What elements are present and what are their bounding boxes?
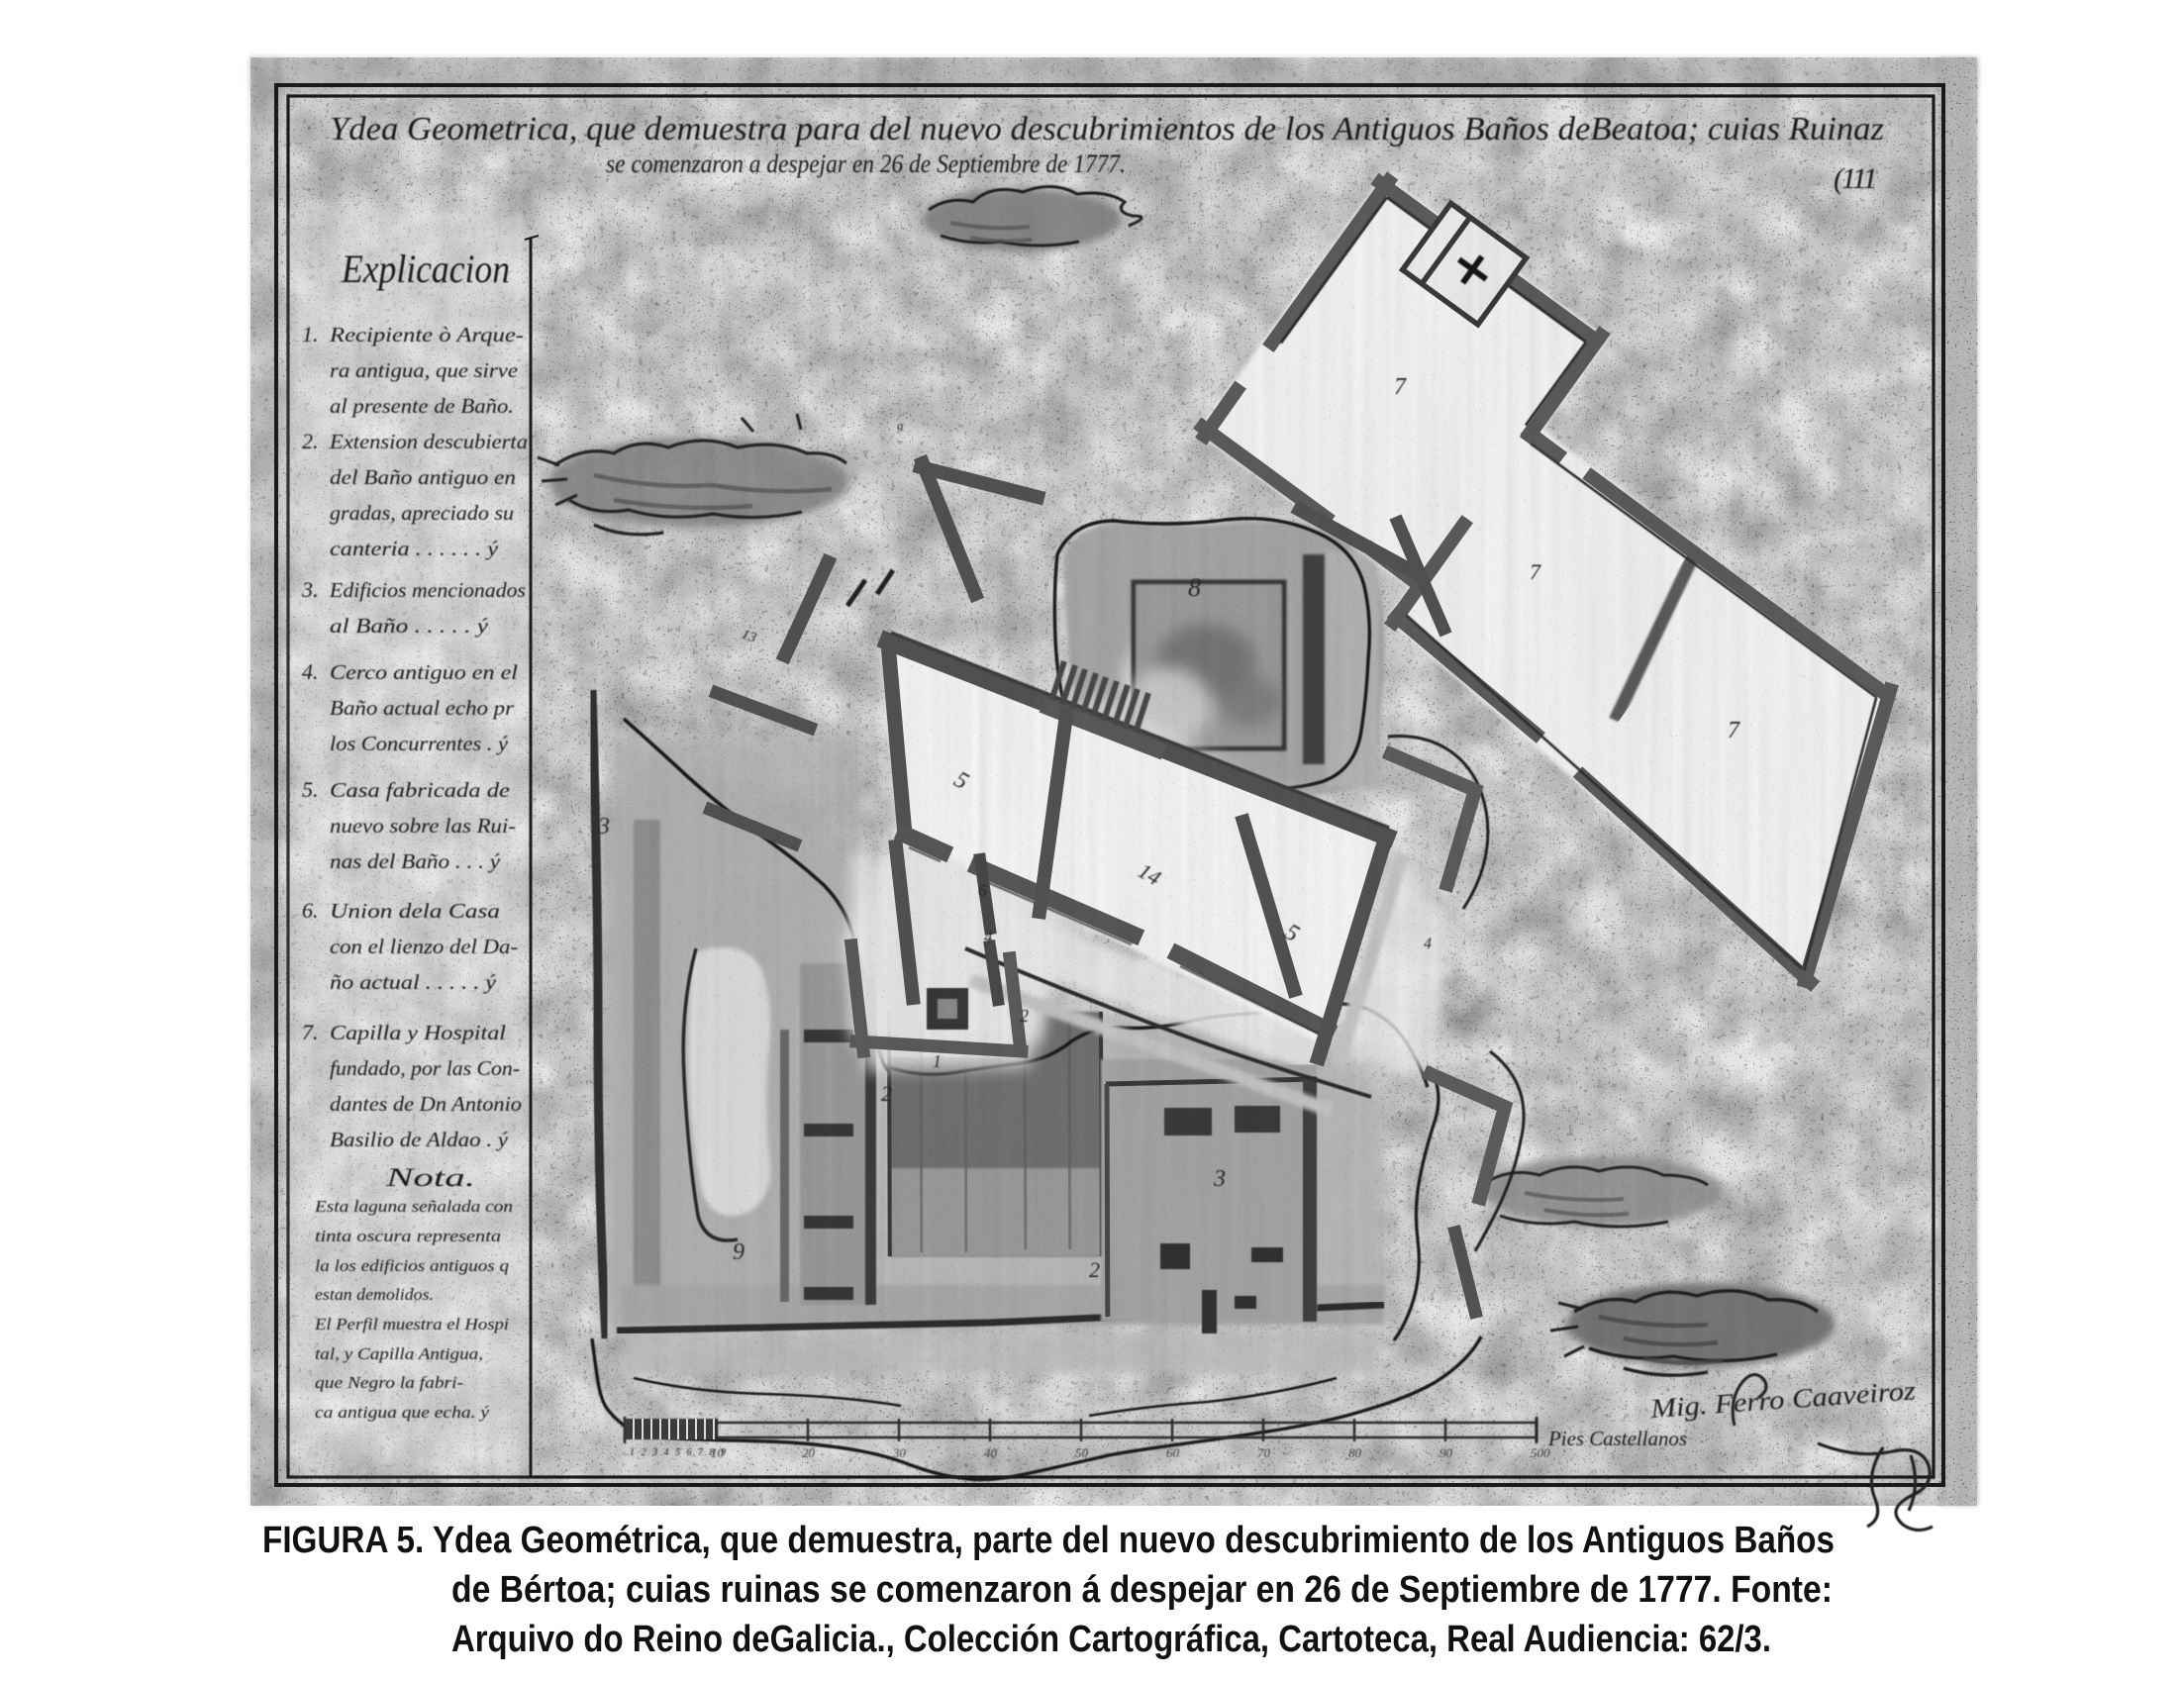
svg-text:80: 80 bbox=[1348, 1445, 1362, 1460]
svg-text:500: 500 bbox=[1531, 1445, 1550, 1460]
svg-text:1 2 3 4 5 6 7 8 9: 1 2 3 4 5 6 7 8 9 bbox=[630, 1447, 728, 1458]
svg-text:50: 50 bbox=[1075, 1445, 1089, 1460]
svg-text:90: 90 bbox=[1439, 1445, 1453, 1460]
svg-text:Arquivo do Reino deGalicia., C: Arquivo do Reino deGalicia., Colección C… bbox=[451, 1619, 1771, 1660]
svg-text:60: 60 bbox=[1166, 1445, 1180, 1460]
svg-text:de Bértoa; cuias ruinas se com: de Bértoa; cuias ruinas se comenzaron á … bbox=[451, 1569, 1833, 1611]
svg-text:70: 70 bbox=[1257, 1445, 1271, 1460]
svg-text:FIGURA 5. Ydea Geométrica, que: FIGURA 5. Ydea Geométrica, que demuestra… bbox=[262, 1520, 1835, 1561]
svg-text:40: 40 bbox=[984, 1445, 998, 1460]
svg-text:20: 20 bbox=[802, 1445, 816, 1460]
svg-text:30: 30 bbox=[892, 1445, 907, 1460]
svg-text:Pies Castellanos: Pies Castellanos bbox=[1547, 1427, 1687, 1450]
